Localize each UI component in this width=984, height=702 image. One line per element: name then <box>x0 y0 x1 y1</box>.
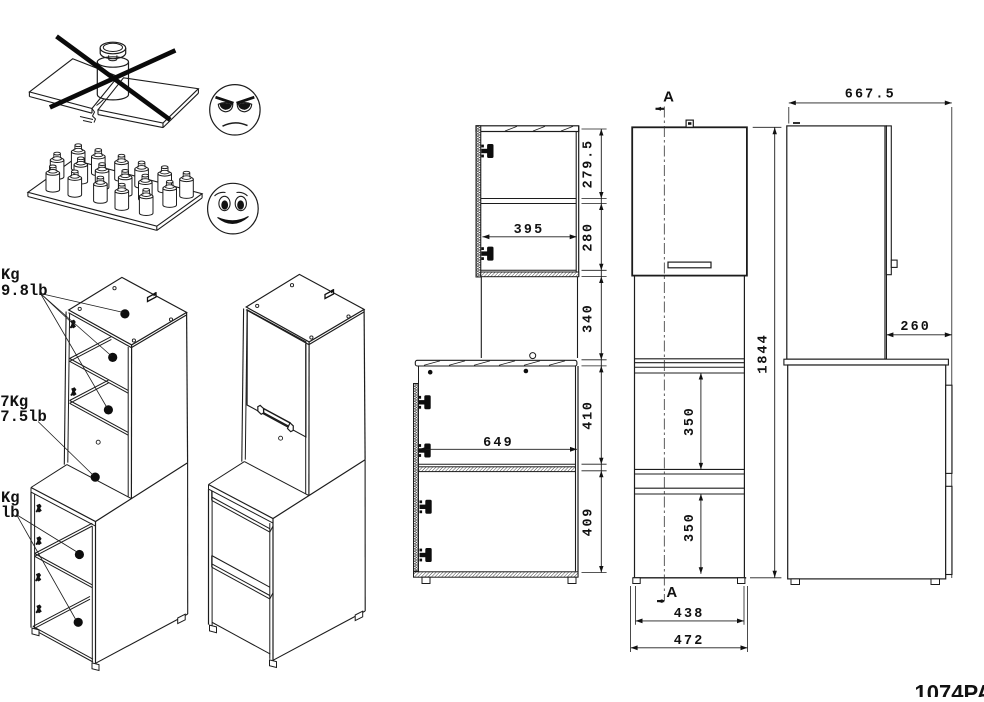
svg-text:350: 350 <box>683 406 698 436</box>
svg-text:280: 280 <box>582 222 597 252</box>
svg-text:279.5: 279.5 <box>582 139 597 188</box>
svg-text:lb: lb <box>1 504 20 522</box>
svg-text:667.5: 667.5 <box>845 88 896 103</box>
svg-text:9.8lb: 9.8lb <box>1 282 48 300</box>
svg-text:649: 649 <box>483 436 514 451</box>
svg-text:410: 410 <box>582 400 597 430</box>
svg-text:350: 350 <box>683 512 698 542</box>
svg-text:1074PA2: 1074PA2 <box>915 681 984 698</box>
svg-text:A: A <box>666 584 677 601</box>
svg-text:340: 340 <box>582 303 597 333</box>
svg-text:A: A <box>663 89 674 106</box>
svg-text:409: 409 <box>582 507 597 537</box>
svg-text:1844: 1844 <box>757 333 772 373</box>
svg-text:395: 395 <box>514 223 545 238</box>
svg-text:438: 438 <box>674 607 705 622</box>
svg-text:472: 472 <box>674 634 705 649</box>
svg-text:260: 260 <box>900 320 931 335</box>
